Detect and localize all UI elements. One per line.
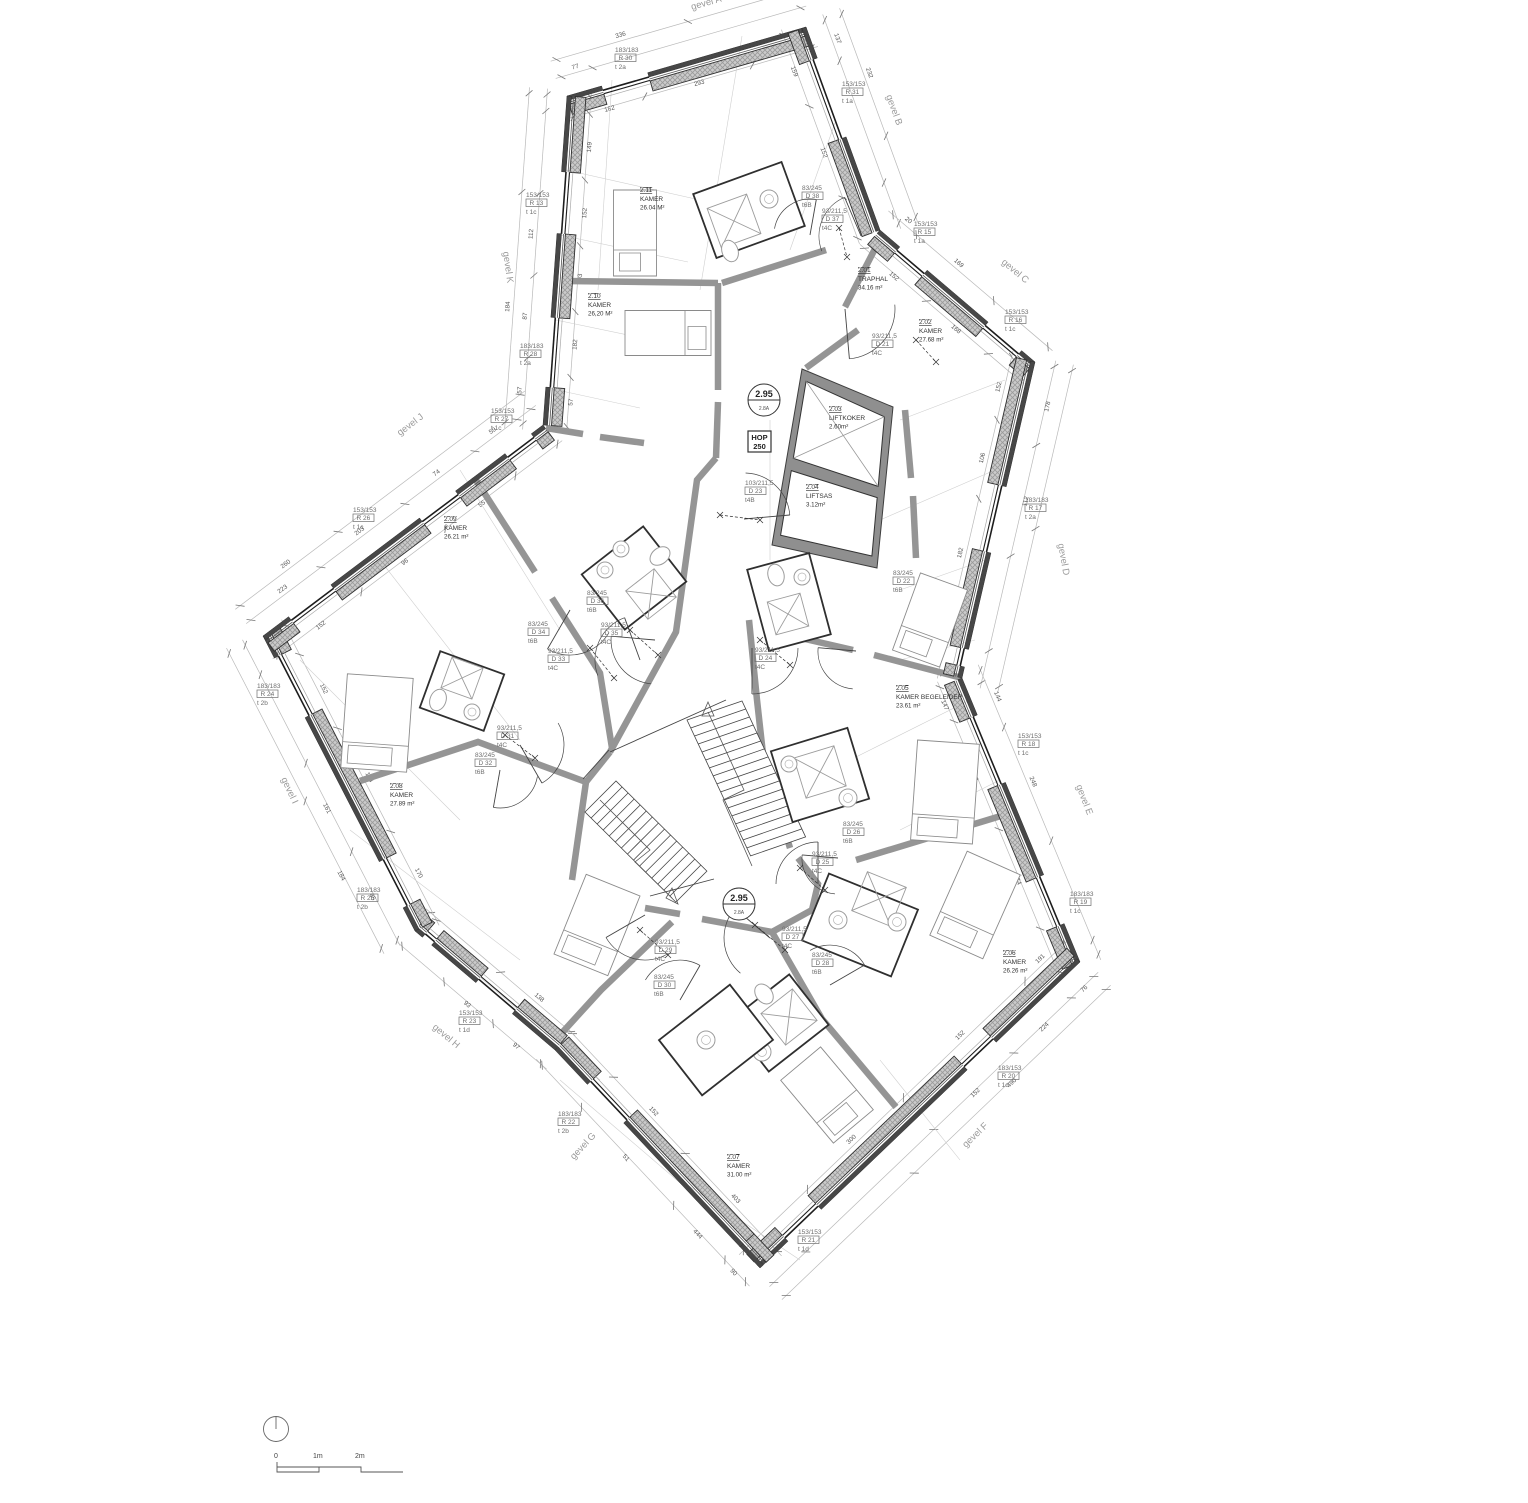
svg-text:57: 57 bbox=[516, 386, 524, 394]
svg-text:LIFTSAS: LIFTSAS bbox=[806, 493, 833, 500]
svg-text:83/245: 83/245 bbox=[654, 974, 674, 981]
svg-text:26,20 M²: 26,20 M² bbox=[588, 311, 612, 318]
svg-text:t6B: t6B bbox=[528, 638, 538, 645]
svg-text:D 25: D 25 bbox=[816, 859, 830, 866]
svg-text:R 26: R 26 bbox=[357, 515, 371, 522]
svg-text:t6B: t6B bbox=[843, 838, 853, 845]
svg-text:183/183: 183/183 bbox=[558, 1111, 582, 1118]
svg-text:D 33: D 33 bbox=[552, 656, 566, 663]
svg-text:26.26 m²: 26.26 m² bbox=[1003, 968, 1027, 975]
svg-text:2m: 2m bbox=[355, 1453, 365, 1460]
svg-text:t 1d: t 1d bbox=[459, 1027, 470, 1034]
svg-text:2.08: 2.08 bbox=[390, 783, 403, 790]
svg-text:D 26: D 26 bbox=[847, 829, 861, 836]
svg-text:2.60m²: 2.60m² bbox=[829, 424, 848, 431]
svg-text:t 2b: t 2b bbox=[257, 700, 268, 707]
svg-text:83/245: 83/245 bbox=[893, 570, 913, 577]
svg-text:152: 152 bbox=[581, 207, 589, 218]
svg-text:t6B: t6B bbox=[654, 991, 664, 998]
svg-text:182: 182 bbox=[572, 339, 580, 350]
svg-text:t4C: t4C bbox=[822, 225, 832, 232]
svg-text:KAMER: KAMER bbox=[919, 328, 942, 335]
svg-text:t6B: t6B bbox=[802, 202, 812, 209]
svg-text:2.95: 2.95 bbox=[730, 893, 748, 903]
svg-text:t 1a: t 1a bbox=[914, 238, 925, 245]
svg-text:t4C: t4C bbox=[872, 350, 882, 357]
svg-text:D 30: D 30 bbox=[658, 982, 672, 989]
svg-text:KAMER BEGELEIDER: KAMER BEGELEIDER bbox=[896, 694, 963, 701]
svg-text:83/245: 83/245 bbox=[528, 621, 548, 628]
svg-text:t 1c: t 1c bbox=[1018, 750, 1029, 757]
svg-text:83/245: 83/245 bbox=[843, 821, 863, 828]
svg-text:D 27: D 27 bbox=[786, 934, 800, 941]
svg-text:26.21 m²: 26.21 m² bbox=[444, 534, 468, 541]
svg-text:183/183: 183/183 bbox=[615, 47, 639, 54]
svg-text:93/211,5: 93/211,5 bbox=[872, 333, 897, 340]
svg-text:R 25: R 25 bbox=[361, 895, 375, 902]
svg-text:KAMER: KAMER bbox=[727, 1163, 750, 1170]
svg-text:2.09: 2.09 bbox=[444, 516, 457, 523]
svg-text:R 31: R 31 bbox=[846, 89, 860, 96]
svg-text:t 1c: t 1c bbox=[353, 524, 364, 531]
svg-text:KAMER: KAMER bbox=[640, 196, 663, 203]
svg-text:D 32: D 32 bbox=[479, 760, 493, 767]
svg-text:149: 149 bbox=[586, 141, 594, 152]
svg-text:t6B: t6B bbox=[587, 607, 597, 614]
svg-text:2.04: 2.04 bbox=[806, 484, 819, 491]
svg-text:153/153: 153/153 bbox=[1018, 733, 1042, 740]
svg-text:R 28: R 28 bbox=[524, 351, 538, 358]
svg-text:KAMER: KAMER bbox=[588, 302, 611, 309]
svg-text:153/153: 153/153 bbox=[914, 221, 938, 228]
svg-text:3.12m²: 3.12m² bbox=[806, 502, 825, 509]
svg-text:153/153: 153/153 bbox=[491, 408, 515, 415]
svg-text:93/211,5: 93/211,5 bbox=[601, 622, 626, 629]
svg-text:R 24: R 24 bbox=[261, 691, 275, 698]
svg-text:t4C: t4C bbox=[755, 664, 765, 671]
svg-text:93/211,5: 93/211,5 bbox=[782, 926, 807, 933]
svg-text:R 13: R 13 bbox=[530, 200, 544, 207]
svg-text:t 1a: t 1a bbox=[842, 98, 853, 105]
svg-text:153/153: 153/153 bbox=[842, 81, 866, 88]
svg-text:R 23: R 23 bbox=[463, 1018, 477, 1025]
svg-text:LIFTKOKER: LIFTKOKER bbox=[829, 415, 865, 422]
svg-text:t 1c: t 1c bbox=[1070, 908, 1081, 915]
svg-text:2.06: 2.06 bbox=[1003, 950, 1016, 957]
svg-text:2.07: 2.07 bbox=[727, 1154, 740, 1161]
svg-text:D 35: D 35 bbox=[605, 630, 619, 637]
svg-text:R 27: R 27 bbox=[495, 416, 509, 423]
svg-text:87: 87 bbox=[522, 312, 530, 320]
svg-text:R 17: R 17 bbox=[1029, 505, 1043, 512]
svg-text:D 31: D 31 bbox=[501, 733, 515, 740]
svg-text:153/153: 153/153 bbox=[459, 1010, 483, 1017]
svg-text:HOP: HOP bbox=[751, 433, 767, 442]
svg-text:R 20: R 20 bbox=[1002, 1073, 1016, 1080]
svg-text:1m: 1m bbox=[313, 1453, 323, 1460]
svg-text:t6B: t6B bbox=[812, 969, 822, 976]
svg-text:t 1d: t 1d bbox=[798, 1246, 809, 1253]
svg-text:t 2a: t 2a bbox=[520, 360, 531, 367]
svg-text:t 1c: t 1c bbox=[526, 209, 537, 216]
svg-text:183/183: 183/183 bbox=[357, 887, 381, 894]
svg-text:D 36: D 36 bbox=[591, 598, 605, 605]
svg-text:2.11: 2.11 bbox=[640, 187, 653, 194]
svg-text:t 1d: t 1d bbox=[998, 1082, 1009, 1089]
svg-text:D 28: D 28 bbox=[816, 960, 830, 967]
svg-text:D 24: D 24 bbox=[759, 655, 773, 662]
svg-text:t 1c: t 1c bbox=[1005, 326, 1016, 333]
svg-text:D 29: D 29 bbox=[659, 947, 673, 954]
svg-text:D 34: D 34 bbox=[532, 629, 546, 636]
svg-text:t 2b: t 2b bbox=[558, 1128, 569, 1135]
svg-text:t 2a: t 2a bbox=[1025, 514, 1036, 521]
svg-text:27.89 m²: 27.89 m² bbox=[390, 801, 414, 808]
svg-text:t6B: t6B bbox=[893, 587, 903, 594]
svg-text:t4C: t4C bbox=[655, 956, 665, 963]
svg-text:93/211,5: 93/211,5 bbox=[548, 648, 573, 655]
svg-text:183/183: 183/183 bbox=[520, 343, 544, 350]
svg-text:t 2b: t 2b bbox=[357, 904, 368, 911]
svg-text:183/183: 183/183 bbox=[1025, 497, 1049, 504]
svg-text:153/153: 153/153 bbox=[1005, 309, 1029, 316]
svg-text:2.8A: 2.8A bbox=[759, 406, 770, 412]
svg-text:184: 184 bbox=[504, 301, 512, 312]
svg-text:t4C: t4C bbox=[782, 943, 792, 950]
svg-text:R 19: R 19 bbox=[1074, 899, 1088, 906]
svg-text:57: 57 bbox=[567, 398, 575, 406]
svg-text:112: 112 bbox=[528, 228, 536, 239]
svg-text:R 15: R 15 bbox=[918, 229, 932, 236]
svg-text:183/183: 183/183 bbox=[1070, 891, 1094, 898]
svg-text:t 2a: t 2a bbox=[615, 64, 626, 71]
svg-text:D 23: D 23 bbox=[749, 488, 763, 495]
svg-text:27.68 m²: 27.68 m² bbox=[919, 337, 943, 344]
svg-text:183/183: 183/183 bbox=[257, 683, 281, 690]
svg-text:t4C: t4C bbox=[812, 868, 822, 875]
svg-text:0: 0 bbox=[274, 1453, 278, 1460]
svg-text:t4C: t4C bbox=[548, 665, 558, 672]
svg-text:2.01: 2.01 bbox=[858, 267, 871, 274]
svg-text:R 16: R 16 bbox=[1009, 317, 1023, 324]
svg-text:183/153: 183/153 bbox=[998, 1065, 1022, 1072]
svg-text:D 22: D 22 bbox=[897, 578, 911, 585]
svg-text:2.95: 2.95 bbox=[755, 389, 773, 399]
svg-text:153/153: 153/153 bbox=[798, 1229, 822, 1236]
svg-text:2.10: 2.10 bbox=[588, 293, 601, 300]
svg-text:34.16 m²: 34.16 m² bbox=[858, 285, 882, 292]
svg-text:R 30: R 30 bbox=[619, 55, 633, 62]
svg-text:2.02: 2.02 bbox=[919, 319, 932, 326]
svg-text:R 22: R 22 bbox=[562, 1119, 576, 1126]
svg-text:93/211,5: 93/211,5 bbox=[497, 725, 522, 732]
svg-text:TRAPHAL: TRAPHAL bbox=[858, 276, 888, 283]
svg-text:D 21: D 21 bbox=[876, 341, 890, 348]
svg-text:93/211,5: 93/211,5 bbox=[655, 939, 680, 946]
svg-text:103/211,5: 103/211,5 bbox=[745, 480, 774, 487]
svg-text:R 21: R 21 bbox=[802, 1237, 816, 1244]
svg-text:153/153: 153/153 bbox=[526, 192, 550, 199]
svg-text:93/211,5: 93/211,5 bbox=[755, 647, 780, 654]
svg-text:250: 250 bbox=[753, 442, 766, 451]
svg-text:31.00 m²: 31.00 m² bbox=[727, 1172, 751, 1179]
svg-text:83/245: 83/245 bbox=[812, 952, 832, 959]
svg-text:t4B: t4B bbox=[745, 497, 755, 504]
svg-text:t4C: t4C bbox=[601, 639, 611, 646]
svg-text:26.04 M²: 26.04 M² bbox=[640, 205, 664, 212]
svg-text:83/245: 83/245 bbox=[587, 590, 607, 597]
svg-text:2.05: 2.05 bbox=[896, 685, 909, 692]
svg-text:2.8A: 2.8A bbox=[734, 910, 745, 916]
svg-text:t6B: t6B bbox=[475, 769, 485, 776]
svg-text:2.03: 2.03 bbox=[829, 406, 842, 413]
svg-text:D 38: D 38 bbox=[806, 193, 820, 200]
svg-text:KAMER: KAMER bbox=[390, 792, 413, 799]
svg-text:t 1c: t 1c bbox=[491, 425, 502, 432]
svg-text:R 18: R 18 bbox=[1022, 741, 1036, 748]
svg-text:23.61 m²: 23.61 m² bbox=[896, 703, 920, 710]
svg-text:83/245: 83/245 bbox=[475, 752, 495, 759]
svg-text:KAMER: KAMER bbox=[444, 525, 467, 532]
svg-text:83/245: 83/245 bbox=[802, 185, 822, 192]
svg-text:93/211,5: 93/211,5 bbox=[812, 851, 837, 858]
svg-text:KAMER: KAMER bbox=[1003, 959, 1026, 966]
svg-text:153/153: 153/153 bbox=[353, 507, 377, 514]
svg-text:t4C: t4C bbox=[497, 742, 507, 749]
svg-text:93/211,5: 93/211,5 bbox=[822, 208, 847, 215]
svg-text:D 37: D 37 bbox=[826, 216, 840, 223]
